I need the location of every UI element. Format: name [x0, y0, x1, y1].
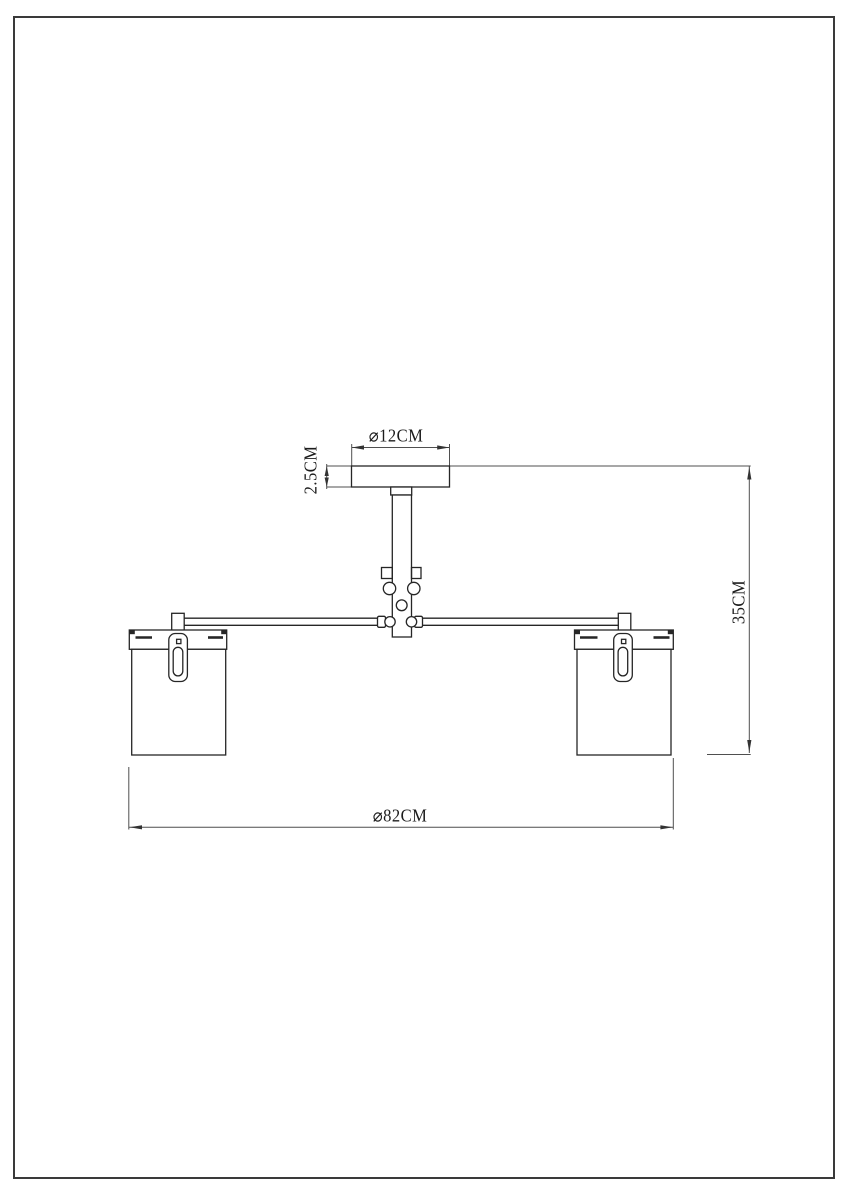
dim-canopy-diameter: [352, 444, 450, 466]
ceiling-lamp-technical-drawing: [0, 0, 849, 1200]
stem: [392, 495, 411, 637]
overall-diameter-label: ⌀82CM: [373, 806, 428, 827]
canopy: [352, 466, 450, 487]
dim-canopy-height: [325, 464, 352, 489]
socket-left: [169, 634, 188, 682]
drawing-sheet: ⌀12CM 2.5CM 35CM ⌀82CM: [0, 0, 849, 1200]
stem-tab-right: [412, 568, 422, 579]
socket-right: [614, 634, 633, 682]
canopy-diameter-label: ⌀12CM: [369, 426, 424, 447]
canopy-height-label: 2.5CM: [301, 446, 322, 495]
canopy-collar: [391, 487, 412, 495]
lamp-fixture: [129, 466, 673, 755]
overall-height-label: 35CM: [729, 580, 750, 624]
stem-tab-left: [382, 568, 393, 579]
